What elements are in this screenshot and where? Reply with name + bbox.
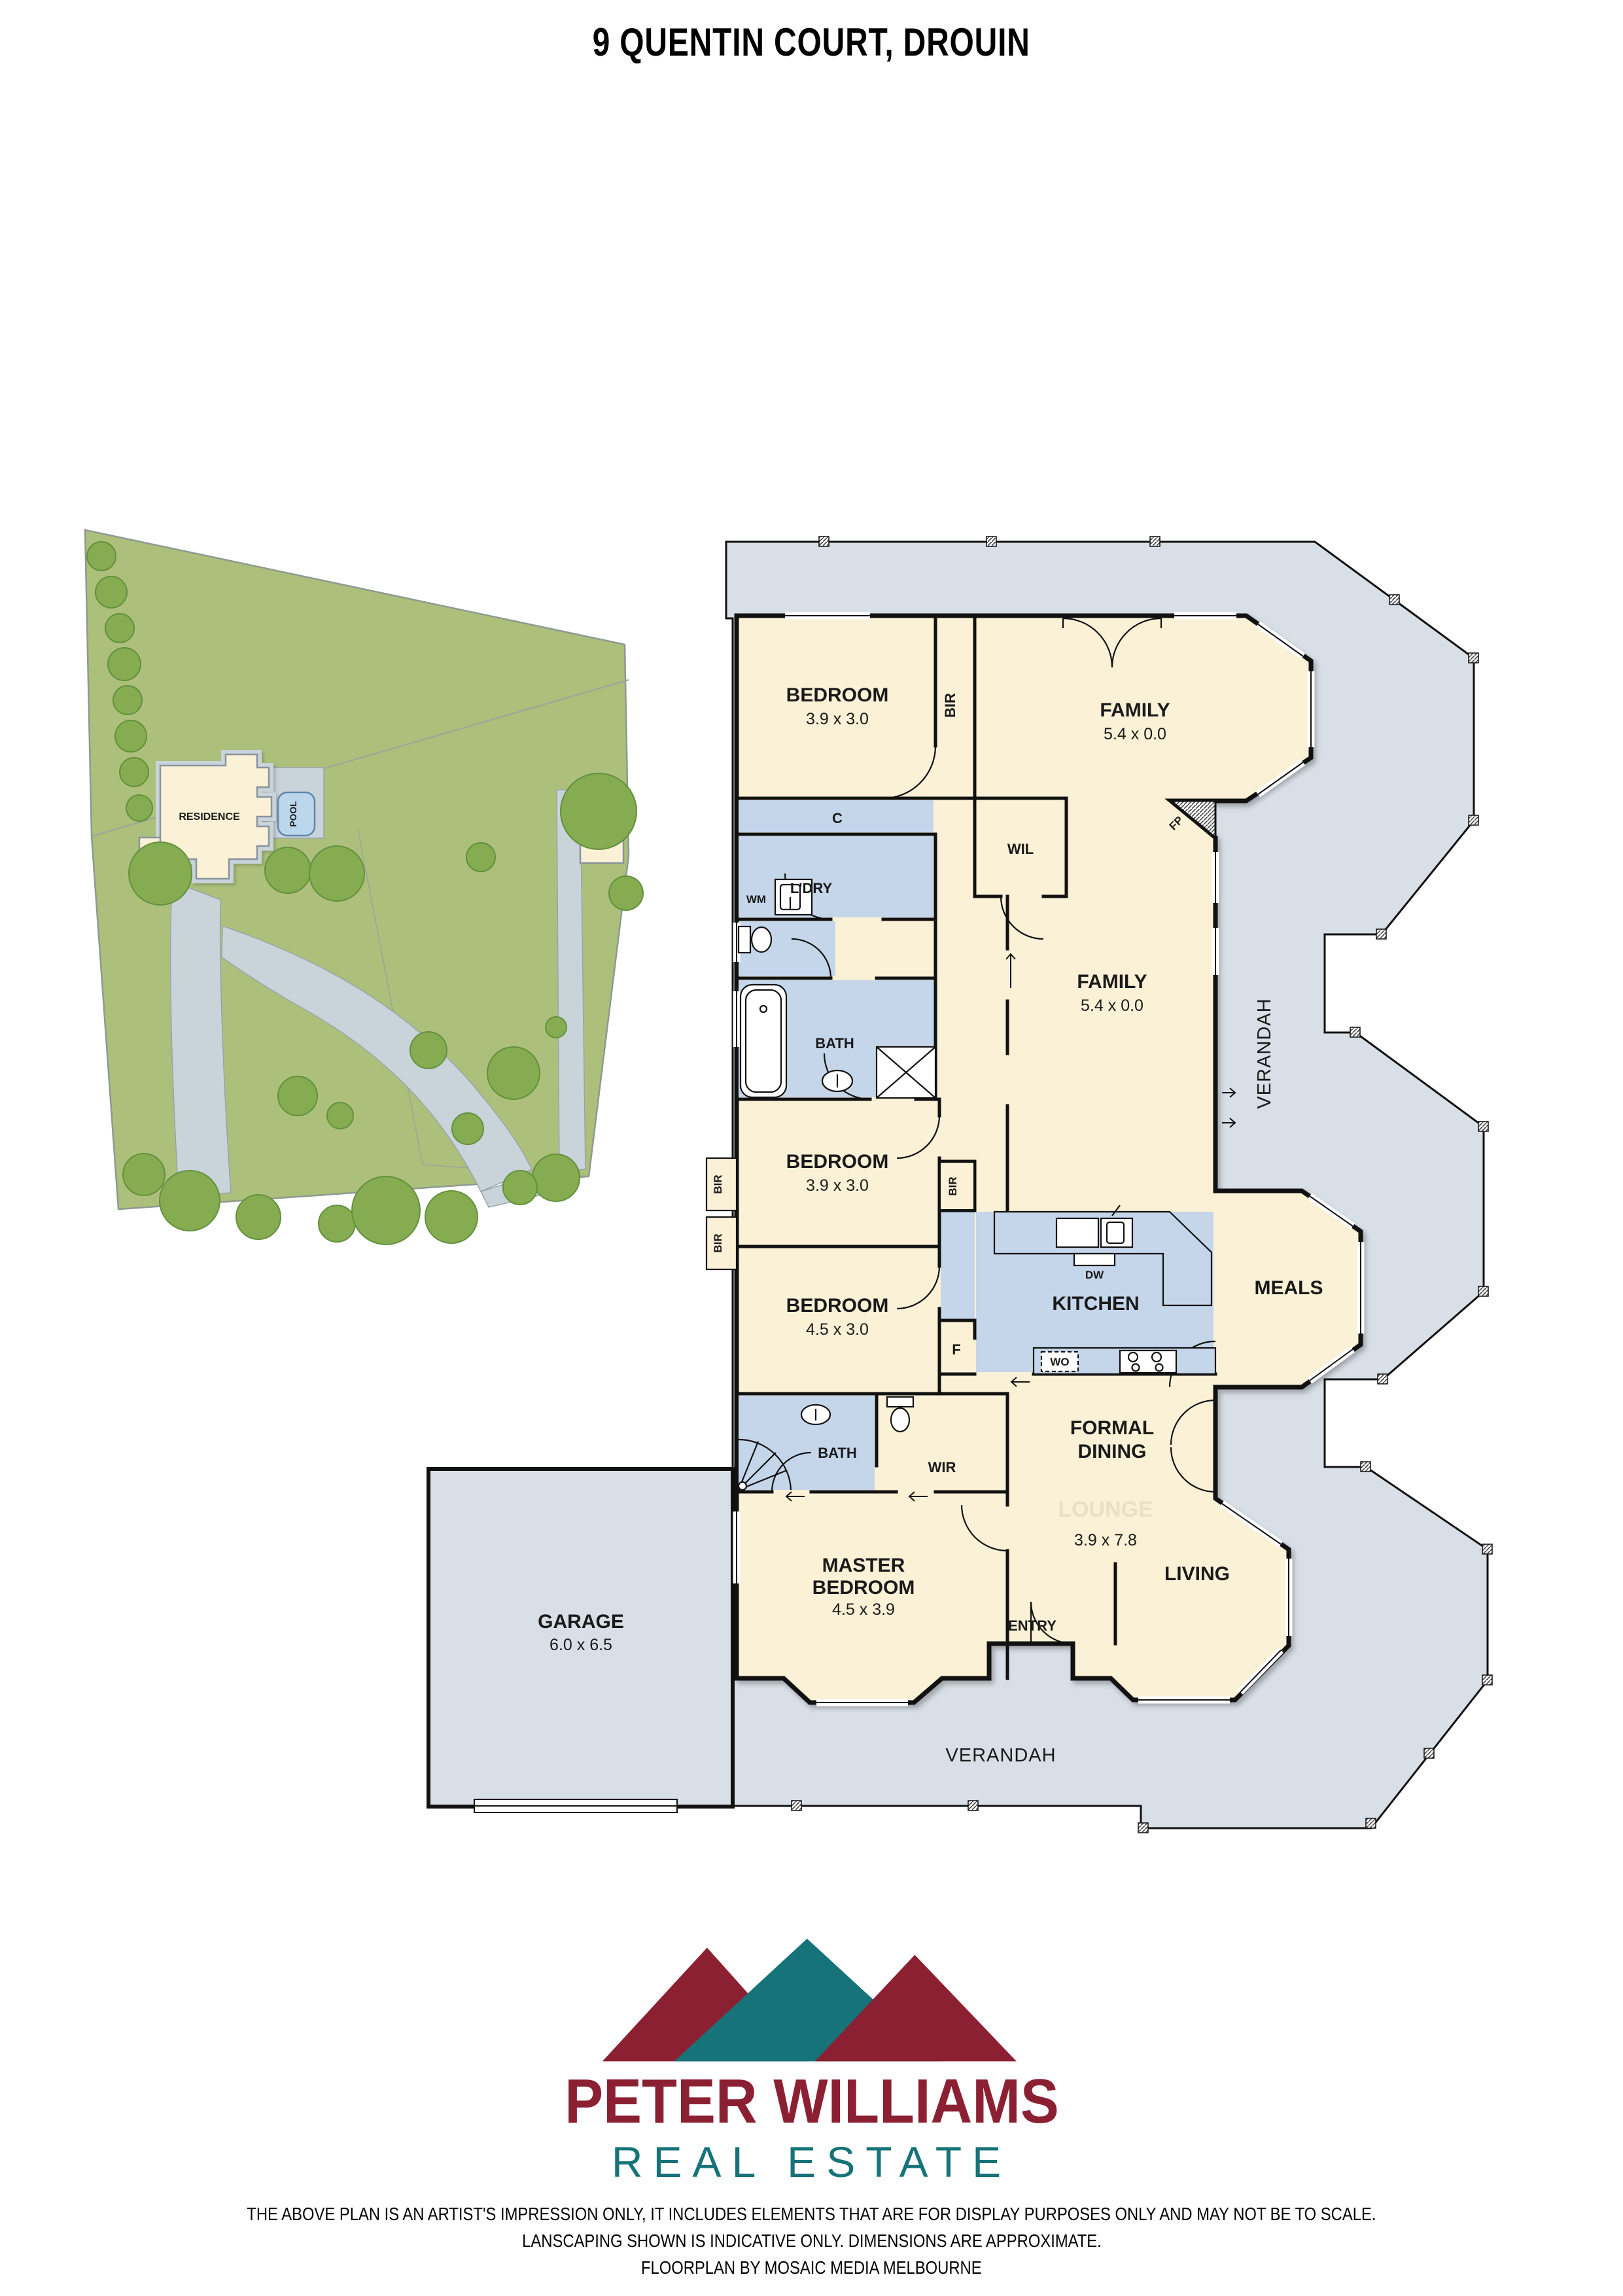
master-label2: BEDROOM	[812, 1577, 915, 1598]
family-lower-dims: 5.4 x 0.0	[1081, 997, 1143, 1015]
dining-label2: DINING	[1078, 1441, 1147, 1462]
verandah-right-label: VERANDAH	[1254, 998, 1275, 1108]
living-label: LIVING	[1164, 1563, 1230, 1585]
floor-plan: GARAGE 6.0 x 6.5 FP	[419, 530, 1544, 1858]
master-label1: MASTER	[822, 1555, 905, 1576]
bath2-label: BATH	[818, 1445, 856, 1461]
bedroom3-label: BEDROOM	[786, 1151, 889, 1173]
bir-mid-label: BIR	[947, 1176, 959, 1195]
page-title: 9 QUENTIN COURT, DROUIN	[593, 20, 1030, 65]
pool-label: POOL	[288, 801, 298, 827]
title-row: 9 QUENTIN COURT, DROUIN	[0, 20, 1623, 65]
family-upper-label: FAMILY	[1100, 699, 1170, 721]
bir-top-label: BIR	[942, 693, 958, 718]
wo-label: WO	[1050, 1356, 1069, 1368]
entry-label: ENTRY	[1008, 1617, 1056, 1634]
floor-plan-svg: GARAGE 6.0 x 6.5 FP	[419, 530, 1544, 1858]
residence-label: RESIDENCE	[179, 811, 240, 822]
disclaimer: THE ABOVE PLAN IS AN ARTIST'S IMPRESSION…	[0, 2204, 1623, 2284]
disclaimer-line-3: FLOORPLAN BY MOSAIC MEDIA MELBOURNE	[641, 2257, 982, 2278]
wm-label: WM	[746, 893, 766, 906]
bedroom3-dims: 3.9 x 3.0	[806, 1176, 869, 1195]
dining-label1: FORMAL	[1070, 1417, 1154, 1439]
disclaimer-line-1: THE ABOVE PLAN IS AN ARTIST'S IMPRESSION…	[247, 2204, 1376, 2225]
dw-label: DW	[1085, 1269, 1104, 1281]
wil-label: WIL	[1007, 841, 1034, 857]
bedroom4-dims: 4.5 x 3.0	[806, 1320, 869, 1339]
bedroom4-label: BEDROOM	[786, 1295, 889, 1316]
agency-logo: PETER WILLIAMS REAL ESTATE	[517, 1924, 1106, 2186]
verandah-bottom-label: VERANDAH	[945, 1745, 1056, 1766]
page: 9 QUENTIN COURT, DROUIN RESIDENCE POOL	[0, 0, 1623, 2296]
bir-left2-label: BIR	[712, 1233, 724, 1252]
bedroom2-dims: 3.9 x 3.0	[806, 710, 869, 728]
logo-peaks-icon	[583, 1924, 1041, 2064]
bedroom2-label: BEDROOM	[786, 684, 889, 706]
disclaimer-line-2: LANSCAPING SHOWN IS INDICATIVE ONLY. DIM…	[522, 2231, 1102, 2252]
family-upper-dims: 5.4 x 0.0	[1104, 725, 1166, 743]
family-lower-label: FAMILY	[1077, 971, 1147, 993]
lounge-watermark: LOUNGE	[1058, 1497, 1153, 1522]
wir-label: WIR	[928, 1459, 956, 1475]
master-dims: 4.5 x 3.9	[832, 1600, 895, 1619]
cupboard-label: C	[832, 810, 843, 826]
meals-label: MEALS	[1255, 1277, 1323, 1299]
dining-dims: 3.9 x 7.8	[1074, 1531, 1137, 1549]
logo-brand-tagline: REAL ESTATE	[517, 2138, 1106, 2186]
fridge-label: F	[952, 1341, 960, 1358]
kitchen-label: KITCHEN	[1052, 1293, 1139, 1315]
logo-brand-name: PETER WILLIAMS	[541, 2070, 1083, 2133]
bir-left1-label: BIR	[712, 1174, 724, 1193]
pool: POOL	[278, 792, 315, 836]
garage-dims: 6.0 x 6.5	[550, 1636, 612, 1654]
garage: GARAGE 6.0 x 6.5	[428, 1469, 733, 1812]
laundry-label: L'DRY	[790, 880, 833, 896]
bath-label: BATH	[815, 1035, 854, 1051]
garage-label: GARAGE	[538, 1611, 624, 1633]
